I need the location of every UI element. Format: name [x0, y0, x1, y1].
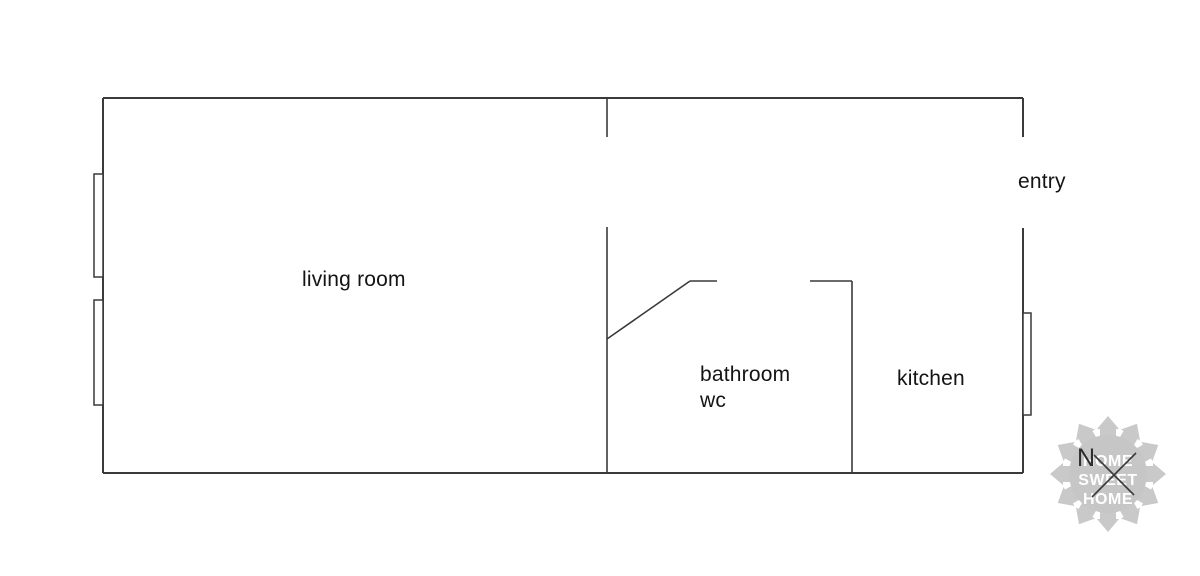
room-label-kitchen: kitchen: [897, 367, 965, 391]
home-sweet-home-watermark: HOME SWEET HOME: [1050, 416, 1166, 532]
floor-plan-drawing: HOME SWEET HOME N: [0, 0, 1200, 576]
floor-plan: HOME SWEET HOME N living room bathro: [0, 0, 1200, 576]
room-label-living-room: living room: [302, 268, 406, 292]
window-kitchen: [1023, 313, 1031, 415]
bathroom-door-leaf: [607, 281, 690, 339]
bathroom-label-line1: bathroom: [700, 362, 790, 388]
compass-north-label: N: [1077, 444, 1095, 472]
bathroom-label-line2: wc: [700, 388, 790, 414]
watermark-text-line3: HOME: [1083, 491, 1133, 508]
room-label-bathroom: bathroom wc: [700, 362, 790, 414]
window-living-room-lower: [94, 300, 103, 405]
room-label-entry: entry: [1018, 170, 1066, 194]
window-living-room-upper: [94, 174, 103, 277]
